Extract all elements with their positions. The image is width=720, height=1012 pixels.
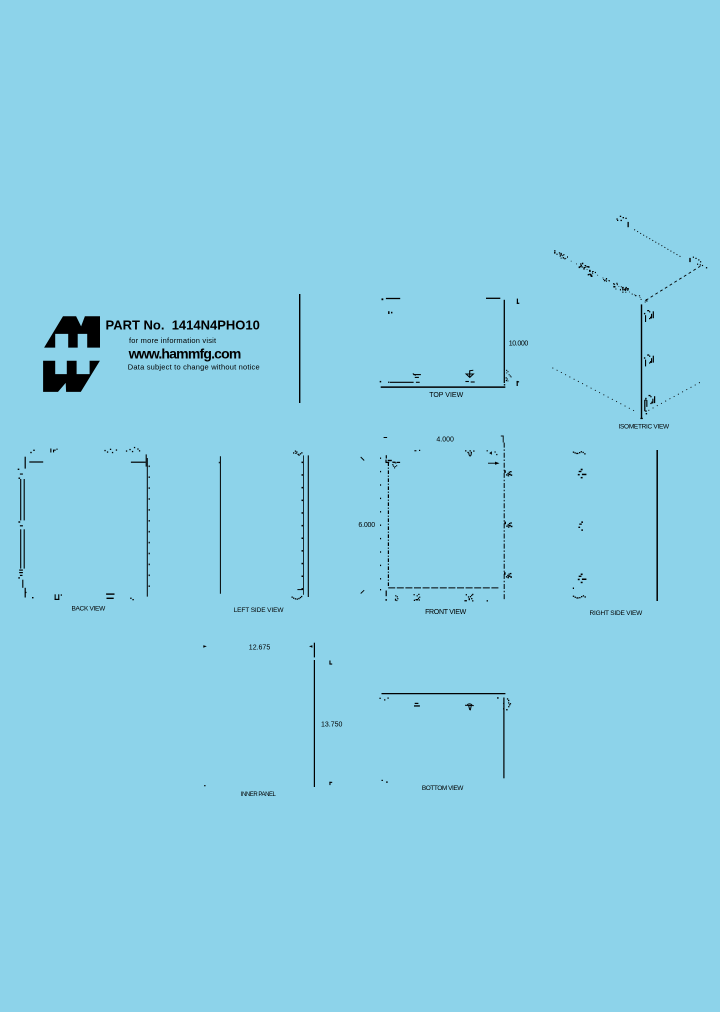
svg-text:4.000: 4.000 bbox=[436, 436, 454, 443]
svg-text:BOTTOM VIEW: BOTTOM VIEW bbox=[422, 785, 464, 792]
svg-text:PART No. 1414N4PHO10: PART No. 1414N4PHO10 bbox=[106, 318, 260, 333]
svg-text:6.000: 6.000 bbox=[358, 522, 375, 529]
svg-text:13.750: 13.750 bbox=[321, 721, 343, 728]
svg-text:12.675: 12.675 bbox=[249, 644, 271, 651]
svg-text:LEFT SIDE VIEW: LEFT SIDE VIEW bbox=[234, 607, 285, 614]
svg-text:for more information visit: for more information visit bbox=[129, 336, 217, 345]
svg-text:10.000: 10.000 bbox=[509, 340, 529, 347]
svg-text:RIGHT SIDE VIEW: RIGHT SIDE VIEW bbox=[590, 610, 644, 617]
svg-text:www.hammfg.com: www.hammfg.com bbox=[128, 345, 241, 361]
svg-text:ISOMETRIC VIEW: ISOMETRIC VIEW bbox=[619, 424, 670, 431]
svg-text:INNER PANEL: INNER PANEL bbox=[241, 792, 277, 798]
svg-text:Data subject to change without: Data subject to change without notice bbox=[128, 362, 260, 371]
svg-text:BACK VIEW: BACK VIEW bbox=[71, 606, 106, 613]
svg-text:TOP VIEW: TOP VIEW bbox=[429, 392, 463, 399]
svg-text:FRONT VIEW: FRONT VIEW bbox=[425, 609, 467, 616]
